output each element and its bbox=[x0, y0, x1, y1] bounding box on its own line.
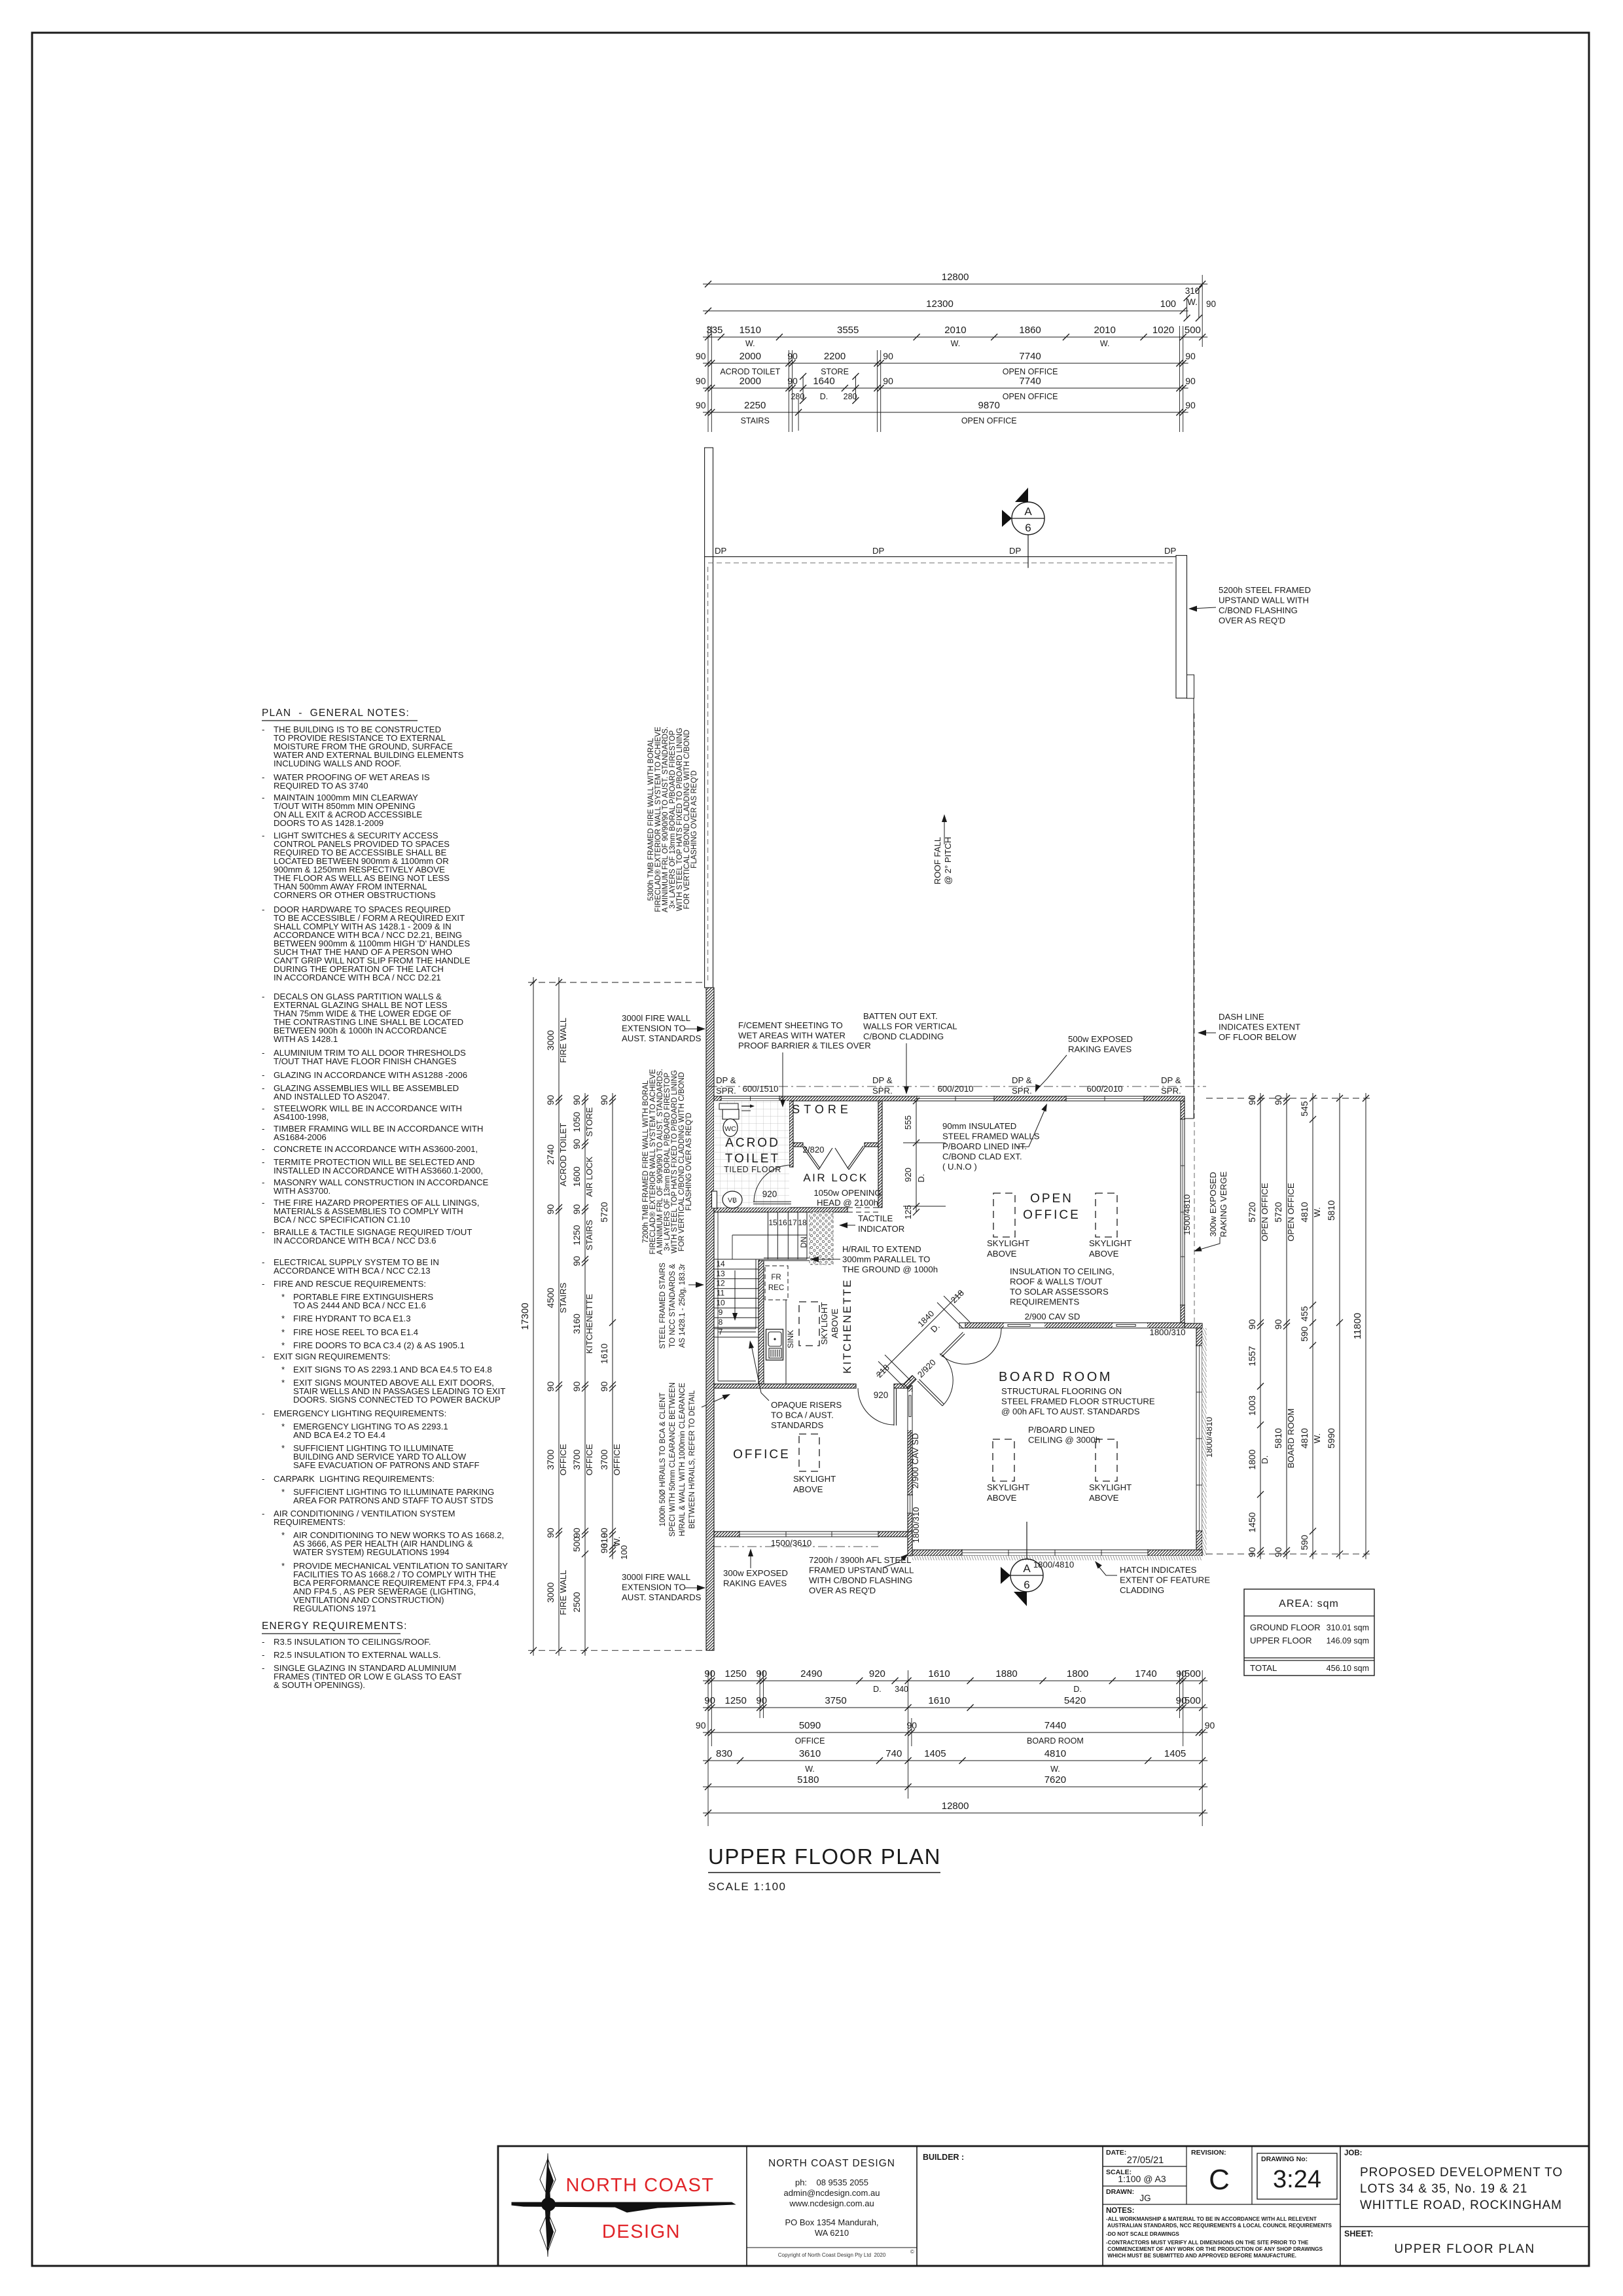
svg-text:90: 90 bbox=[545, 1381, 556, 1391]
svg-text:2250: 2250 bbox=[744, 400, 766, 411]
svg-text:NOTES:: NOTES: bbox=[1106, 2207, 1134, 2215]
svg-text:1860: 1860 bbox=[1019, 325, 1041, 336]
svg-text:OPEN OFFICE: OPEN OFFICE bbox=[961, 416, 1017, 425]
svg-text:UPPER FLOOR PLAN: UPPER FLOOR PLAN bbox=[708, 1844, 941, 1869]
svg-text:BOARD ROOM: BOARD ROOM bbox=[1286, 1408, 1296, 1469]
svg-text:100: 100 bbox=[1160, 299, 1176, 310]
svg-text:18: 18 bbox=[798, 1218, 807, 1227]
svg-text:OFFICE: OFFICE bbox=[612, 1444, 622, 1476]
svg-text:FIRE HOSE REEL TO BCA E1.4: FIRE HOSE REEL TO BCA E1.4 bbox=[293, 1327, 418, 1337]
svg-text:ABOVE: ABOVE bbox=[1089, 1249, 1119, 1259]
svg-text:830: 830 bbox=[716, 1748, 732, 1759]
svg-text:( U.N.O ): ( U.N.O ) bbox=[942, 1162, 977, 1172]
svg-text:AREA FOR PATRONS AND STAFF TO: AREA FOR PATRONS AND STAFF TO AUST STDS bbox=[293, 1496, 493, 1505]
svg-text:-: - bbox=[262, 1198, 264, 1208]
svg-text:5810: 5810 bbox=[1273, 1428, 1283, 1448]
svg-text:90: 90 bbox=[545, 1528, 556, 1538]
svg-text:SKYLIGHT: SKYLIGHT bbox=[1089, 1238, 1132, 1248]
svg-text:500: 500 bbox=[1185, 1695, 1201, 1706]
svg-text:W.: W. bbox=[1312, 1433, 1322, 1443]
svg-text:90: 90 bbox=[545, 1204, 556, 1215]
svg-text:BATTEN OUT EXT.: BATTEN OUT EXT. bbox=[863, 1011, 938, 1021]
svg-text:TO SOLAR ASSESSORS: TO SOLAR ASSESSORS bbox=[1010, 1287, 1109, 1297]
svg-text:FIRE HYDRANT TO BCA E1.3: FIRE HYDRANT TO BCA E1.3 bbox=[293, 1314, 411, 1323]
svg-text:1740: 1740 bbox=[1135, 1668, 1156, 1679]
svg-text:-: - bbox=[262, 1257, 264, 1267]
svg-text:D.: D. bbox=[873, 1685, 882, 1694]
svg-text:90: 90 bbox=[571, 1095, 582, 1105]
svg-text:ABOVE: ABOVE bbox=[987, 1249, 1017, 1259]
svg-text:STAIRS: STAIRS bbox=[584, 1220, 594, 1251]
svg-text:A: A bbox=[1024, 505, 1032, 518]
svg-text:340: 340 bbox=[895, 1685, 908, 1694]
svg-text:455: 455 bbox=[1299, 1306, 1310, 1321]
svg-text:INSULATION TO CEILING,: INSULATION TO CEILING, bbox=[1010, 1266, 1115, 1276]
svg-text:90: 90 bbox=[1185, 351, 1196, 361]
svg-text:*: * bbox=[281, 1292, 285, 1302]
svg-text:13: 13 bbox=[716, 1269, 725, 1278]
svg-text:SKYLIGHT: SKYLIGHT bbox=[987, 1482, 1029, 1492]
svg-text:920: 920 bbox=[762, 1189, 777, 1199]
svg-text:DATE:: DATE: bbox=[1106, 2149, 1126, 2157]
svg-text:ENERGY REQUIREMENTS:: ENERGY REQUIREMENTS: bbox=[262, 1621, 408, 1632]
svg-text:C: C bbox=[1209, 2164, 1230, 2196]
svg-text:ACROD TOILET: ACROD TOILET bbox=[720, 367, 780, 376]
svg-text:GLAZING IN ACCORDANCE WITH AS1: GLAZING IN ACCORDANCE WITH AS1288 -2006 bbox=[274, 1070, 467, 1080]
svg-text:DN: DN bbox=[799, 1236, 808, 1247]
svg-text:PLAN - GENERAL NOTES:: PLAN - GENERAL NOTES: bbox=[262, 708, 410, 719]
svg-text:3555: 3555 bbox=[837, 325, 859, 336]
svg-text:JOB:: JOB: bbox=[1344, 2149, 1362, 2157]
svg-text:INSTALLED IN ACCORDANCE WITH A: INSTALLED IN ACCORDANCE WITH AS3660.1-20… bbox=[274, 1166, 483, 1175]
svg-text:1800: 1800 bbox=[1067, 1668, 1088, 1679]
svg-text:C/BOND CLAD EXT.: C/BOND CLAD EXT. bbox=[942, 1152, 1022, 1162]
svg-text:IN ACCORDANCE WITH BCA / NCC D: IN ACCORDANCE WITH BCA / NCC D2.21 bbox=[274, 973, 441, 982]
svg-text:FLASHING OVER AS REQ'D: FLASHING OVER AS REQ'D bbox=[685, 1113, 693, 1211]
svg-text:5990: 5990 bbox=[1326, 1428, 1336, 1448]
svg-text:RAKING EAVES: RAKING EAVES bbox=[1068, 1045, 1132, 1054]
svg-text:SPR.: SPR. bbox=[872, 1086, 893, 1096]
svg-text:PROOF BARRIER & TILES OVER: PROOF BARRIER & TILES OVER bbox=[738, 1041, 871, 1050]
svg-text:-: - bbox=[262, 831, 264, 840]
svg-text:-: - bbox=[262, 1144, 264, 1154]
svg-text:P/BOARD LINED INT.: P/BOARD LINED INT. bbox=[942, 1141, 1027, 1151]
svg-text:17: 17 bbox=[788, 1218, 797, 1227]
svg-text:SPR.: SPR. bbox=[1161, 1086, 1181, 1096]
svg-text:12800: 12800 bbox=[942, 1801, 969, 1812]
svg-text:W.: W. bbox=[951, 339, 961, 348]
svg-text:*: * bbox=[281, 1422, 285, 1431]
svg-text:-: - bbox=[262, 992, 264, 1001]
svg-text:1600: 1600 bbox=[571, 1166, 582, 1187]
svg-text:SINK: SINK bbox=[786, 1330, 795, 1348]
svg-text:90: 90 bbox=[599, 1543, 609, 1554]
svg-text:OFFICE: OFFICE bbox=[584, 1444, 594, 1476]
svg-text:456.10 sqm: 456.10 sqm bbox=[1327, 1664, 1369, 1673]
svg-text:12: 12 bbox=[716, 1279, 725, 1288]
svg-text:H/RAIL & WALL WITH 1000min CLE: H/RAIL & WALL WITH 1000min CLEARANCE bbox=[679, 1382, 687, 1536]
svg-text:1003: 1003 bbox=[1247, 1395, 1257, 1416]
svg-text:11800: 11800 bbox=[1352, 1313, 1363, 1340]
svg-text:1:100 @ A3: 1:100 @ A3 bbox=[1118, 2174, 1166, 2184]
svg-text:*: * bbox=[281, 1378, 285, 1388]
svg-text:DESIGN: DESIGN bbox=[602, 2221, 681, 2242]
svg-text:ABOVE: ABOVE bbox=[987, 1493, 1017, 1503]
svg-text:90: 90 bbox=[571, 1528, 582, 1538]
svg-text:STAIRS: STAIRS bbox=[558, 1282, 568, 1313]
svg-text:1250: 1250 bbox=[571, 1225, 582, 1245]
svg-text:EMERGENCY LIGHTING REQUIREMENT: EMERGENCY LIGHTING REQUIREMENTS: bbox=[274, 1408, 446, 1418]
svg-text:CARPARK LIGHTING REQUIREMENTS: CARPARK LIGHTING REQUIREMENTS: bbox=[274, 1474, 435, 1484]
svg-text:90: 90 bbox=[1205, 1720, 1215, 1731]
svg-text:FIRE DOORS TO BCA C3.4 (2) & A: FIRE DOORS TO BCA C3.4 (2) & AS 1905.1 bbox=[293, 1340, 465, 1350]
svg-text:DP: DP bbox=[1164, 546, 1177, 556]
svg-text:3000: 3000 bbox=[545, 1582, 556, 1602]
svg-text:500: 500 bbox=[1185, 325, 1201, 336]
svg-text:OFFICE: OFFICE bbox=[733, 1448, 791, 1462]
svg-text:Copyright of North Coast Desig: Copyright of North Coast Design Pty Ltd … bbox=[778, 2252, 886, 2258]
svg-text:DP: DP bbox=[872, 546, 885, 556]
svg-text:REQUIRED TO AS 3740: REQUIRED TO AS 3740 bbox=[274, 781, 368, 791]
svg-text:-: - bbox=[262, 905, 264, 914]
svg-text:4810: 4810 bbox=[1044, 1748, 1066, 1759]
svg-text:*: * bbox=[281, 1327, 285, 1337]
svg-text:FR: FR bbox=[771, 1274, 781, 1282]
svg-text:280: 280 bbox=[791, 392, 804, 401]
svg-text:BUILDER :: BUILDER : bbox=[923, 2153, 964, 2162]
svg-text:VB: VB bbox=[728, 1196, 737, 1204]
svg-text:AS 1428.1 - 250g, 183.3r: AS 1428.1 - 250g, 183.3r bbox=[679, 1264, 687, 1348]
svg-text:*: * bbox=[281, 1443, 285, 1453]
svg-text:EXTENT OF FEATURE: EXTENT OF FEATURE bbox=[1120, 1575, 1210, 1585]
svg-text:NORTH COAST DESIGN: NORTH COAST DESIGN bbox=[768, 2158, 895, 2169]
svg-text:1050: 1050 bbox=[571, 1112, 582, 1132]
svg-text:5720: 5720 bbox=[1273, 1202, 1283, 1222]
svg-text:OVER AS REQ'D: OVER AS REQ'D bbox=[809, 1586, 876, 1596]
svg-text:AUST. STANDARDS: AUST. STANDARDS bbox=[622, 1033, 702, 1043]
svg-text:90: 90 bbox=[599, 1381, 609, 1391]
svg-text:WATER SYSTEM) REGULATIONS 1994: WATER SYSTEM) REGULATIONS 1994 bbox=[293, 1547, 450, 1557]
svg-text:500: 500 bbox=[1185, 1668, 1201, 1679]
svg-text:*: * bbox=[281, 1314, 285, 1323]
svg-text:-: - bbox=[262, 1103, 264, 1113]
svg-text:4810: 4810 bbox=[1299, 1428, 1310, 1448]
svg-text:TOILET: TOILET bbox=[725, 1152, 780, 1166]
svg-text:TO AS 2444 AND BCA / NCC E1.6: TO AS 2444 AND BCA / NCC E1.6 bbox=[293, 1300, 426, 1310]
svg-text:-: - bbox=[262, 1177, 264, 1187]
svg-text:-: - bbox=[262, 1070, 264, 1080]
svg-text:2740: 2740 bbox=[545, 1144, 556, 1164]
svg-text:7620: 7620 bbox=[1044, 1774, 1066, 1785]
svg-text:590: 590 bbox=[1299, 1535, 1310, 1551]
svg-text:920: 920 bbox=[903, 1168, 913, 1182]
svg-text:C/BOND CLADDING: C/BOND CLADDING bbox=[863, 1031, 944, 1041]
svg-text:146.09 sqm: 146.09 sqm bbox=[1327, 1636, 1369, 1645]
svg-text:1500/4810: 1500/4810 bbox=[1182, 1194, 1192, 1235]
svg-text:www.ncdesign.com.au: www.ncdesign.com.au bbox=[789, 2198, 874, 2208]
svg-text:6: 6 bbox=[1024, 1579, 1029, 1591]
svg-text:1450: 1450 bbox=[1247, 1512, 1257, 1532]
svg-text:UPSTAND WALL WITH: UPSTAND WALL WITH bbox=[1219, 596, 1309, 605]
svg-text:90: 90 bbox=[1247, 1547, 1257, 1558]
svg-text:CLADDING: CLADDING bbox=[1120, 1585, 1164, 1595]
svg-text:1250: 1250 bbox=[725, 1695, 747, 1706]
svg-text:3700: 3700 bbox=[571, 1449, 582, 1469]
svg-text:CORNERS OR OTHER OBSTRUCTIONS: CORNERS OR OTHER OBSTRUCTIONS bbox=[274, 890, 436, 900]
svg-text:125: 125 bbox=[903, 1205, 913, 1219]
svg-text:920: 920 bbox=[874, 1390, 889, 1400]
svg-text:17300: 17300 bbox=[520, 1302, 531, 1330]
svg-text:AIR LOCK: AIR LOCK bbox=[803, 1172, 868, 1184]
svg-text:LOTS 34 & 35, No. 19 & 21: LOTS 34 & 35, No. 19 & 21 bbox=[1360, 2182, 1527, 2196]
svg-text:D.: D. bbox=[820, 392, 829, 401]
svg-text:GROUND FLOOR: GROUND FLOOR bbox=[1250, 1623, 1321, 1632]
svg-text:COMMENCEMENT OF ANY WORK OR TH: COMMENCEMENT OF ANY WORK OR THE PRODUCTI… bbox=[1106, 2246, 1323, 2252]
svg-text:1610: 1610 bbox=[599, 1344, 609, 1364]
svg-text:310.01 sqm: 310.01 sqm bbox=[1327, 1623, 1369, 1632]
svg-text:BOARD ROOM: BOARD ROOM bbox=[1027, 1736, 1084, 1746]
svg-text:AS4100-1998,: AS4100-1998, bbox=[274, 1112, 329, 1122]
svg-text:*: * bbox=[281, 1365, 285, 1374]
svg-text:OFFICE: OFFICE bbox=[795, 1736, 825, 1746]
svg-text:3160: 3160 bbox=[571, 1314, 582, 1334]
svg-text:2/820: 2/820 bbox=[802, 1145, 824, 1155]
svg-text:-: - bbox=[262, 793, 264, 802]
svg-text:90: 90 bbox=[696, 400, 706, 410]
svg-text:14: 14 bbox=[716, 1259, 725, 1268]
svg-text:12800: 12800 bbox=[942, 272, 969, 283]
svg-text:OPEN: OPEN bbox=[1030, 1192, 1073, 1206]
svg-text:INDICATOR: INDICATOR bbox=[858, 1224, 904, 1234]
svg-text:INDICATES EXTENT: INDICATES EXTENT bbox=[1219, 1022, 1300, 1032]
svg-text:600/1510: 600/1510 bbox=[742, 1084, 778, 1094]
svg-text:7440: 7440 bbox=[1044, 1720, 1066, 1731]
svg-text:2010: 2010 bbox=[1094, 325, 1116, 336]
svg-text:3610: 3610 bbox=[799, 1748, 821, 1759]
svg-text:DP &: DP & bbox=[872, 1075, 893, 1085]
svg-text:300mm PARALLEL TO: 300mm PARALLEL TO bbox=[842, 1255, 930, 1265]
svg-text:W.: W. bbox=[1050, 1765, 1060, 1774]
svg-text:6: 6 bbox=[1025, 522, 1031, 534]
svg-text:WALLS FOR VERTICAL: WALLS FOR VERTICAL bbox=[863, 1022, 957, 1031]
svg-text:STORE: STORE bbox=[821, 367, 849, 376]
svg-text:90: 90 bbox=[704, 1668, 715, 1679]
svg-text:90: 90 bbox=[1273, 1319, 1283, 1329]
svg-text:27/05/21: 27/05/21 bbox=[1127, 2155, 1164, 2166]
svg-text:R3.5 INSULATION TO CEILINGS/RO: R3.5 INSULATION TO CEILINGS/ROOF. bbox=[274, 1637, 431, 1647]
svg-text:RAKING VERGE: RAKING VERGE bbox=[1219, 1172, 1228, 1238]
svg-text:AIR LOCK: AIR LOCK bbox=[584, 1157, 594, 1197]
svg-text:INCLUDING WALLS AND ROOF.: INCLUDING WALLS AND ROOF. bbox=[274, 759, 401, 768]
svg-text:11: 11 bbox=[717, 1289, 725, 1298]
svg-text:335: 335 bbox=[706, 325, 722, 336]
svg-text:7740: 7740 bbox=[1019, 351, 1041, 362]
svg-text:90: 90 bbox=[1247, 1319, 1257, 1329]
svg-text:90: 90 bbox=[756, 1695, 767, 1706]
svg-text:500w EXPOSED: 500w EXPOSED bbox=[1068, 1034, 1133, 1044]
svg-text:REVISION:: REVISION: bbox=[1191, 2149, 1226, 2157]
svg-text:ROOF & WALLS T/OUT: ROOF & WALLS T/OUT bbox=[1010, 1277, 1102, 1287]
svg-text:HATCH INDICATES: HATCH INDICATES bbox=[1120, 1565, 1197, 1575]
svg-text:FIRE WALL: FIRE WALL bbox=[558, 1018, 568, 1063]
svg-text:-: - bbox=[262, 772, 264, 782]
svg-text:OFFICE: OFFICE bbox=[1023, 1208, 1080, 1222]
svg-text:90: 90 bbox=[571, 1204, 582, 1215]
svg-text:SCALE 1:100: SCALE 1:100 bbox=[708, 1880, 787, 1893]
svg-text:admin@ncdesign.com.au: admin@ncdesign.com.au bbox=[784, 2188, 880, 2198]
svg-text:@ 2° PITCH: @ 2° PITCH bbox=[943, 837, 953, 885]
svg-text:TOTAL: TOTAL bbox=[1250, 1663, 1277, 1673]
svg-text:ABOVE: ABOVE bbox=[793, 1484, 823, 1494]
svg-text:7200h / 3900h AFL STEEL: 7200h / 3900h AFL STEEL bbox=[809, 1555, 911, 1565]
svg-text:IN ACCORDANCE WITH BCA / NCC D: IN ACCORDANCE WITH BCA / NCC D3.6 bbox=[274, 1236, 436, 1246]
svg-text:OPEN OFFICE: OPEN OFFICE bbox=[1260, 1183, 1270, 1242]
svg-text:90: 90 bbox=[1273, 1095, 1283, 1105]
svg-text:SKYLIGHT: SKYLIGHT bbox=[1089, 1482, 1132, 1492]
svg-text:SKYLIGHT: SKYLIGHT bbox=[819, 1302, 829, 1344]
svg-text:12300: 12300 bbox=[926, 298, 954, 310]
svg-text:1880: 1880 bbox=[995, 1668, 1017, 1679]
svg-text:WET AREAS WITH WATER: WET AREAS WITH WATER bbox=[738, 1031, 846, 1041]
svg-text:5180: 5180 bbox=[797, 1774, 819, 1785]
svg-text:-: - bbox=[262, 725, 264, 734]
svg-text:-: - bbox=[262, 1474, 264, 1484]
svg-text:3:24: 3:24 bbox=[1273, 2166, 1321, 2193]
svg-text:300w EXPOSED: 300w EXPOSED bbox=[723, 1568, 788, 1578]
svg-text:W.: W. bbox=[1100, 339, 1110, 348]
svg-text:SPR.: SPR. bbox=[716, 1086, 736, 1096]
svg-text:2000: 2000 bbox=[740, 351, 761, 362]
svg-text:90: 90 bbox=[571, 1256, 582, 1266]
svg-text:FIRE WALL: FIRE WALL bbox=[558, 1570, 568, 1615]
svg-text:C/BOND FLASHING: C/BOND FLASHING bbox=[1219, 605, 1298, 615]
svg-text:UPPER FLOOR: UPPER FLOOR bbox=[1250, 1636, 1312, 1645]
svg-text:90: 90 bbox=[545, 1095, 556, 1105]
svg-text:SPR.: SPR. bbox=[1012, 1086, 1032, 1096]
svg-text:90: 90 bbox=[571, 1139, 582, 1149]
svg-text:4810: 4810 bbox=[1299, 1202, 1310, 1222]
svg-text:90: 90 bbox=[883, 376, 893, 386]
svg-text:R2.5 INSULATION TO EXTERNAL WA: R2.5 INSULATION TO EXTERNAL WALLS. bbox=[274, 1650, 441, 1660]
svg-text:W.: W. bbox=[1187, 297, 1198, 307]
svg-text:SPECI WITH 50mm CLEARANCE BETW: SPECI WITH 50mm CLEARANCE BETWEEN bbox=[669, 1382, 677, 1537]
svg-text:FLASHING OVER AS REQ'D: FLASHING OVER AS REQ'D bbox=[690, 770, 698, 869]
svg-text:3700: 3700 bbox=[545, 1449, 556, 1469]
svg-text:500: 500 bbox=[571, 1537, 582, 1552]
svg-text:ACROD TOILET: ACROD TOILET bbox=[558, 1123, 568, 1187]
svg-text:KITCHENETTE: KITCHENETTE bbox=[584, 1294, 594, 1354]
svg-text:DP &: DP & bbox=[1012, 1075, 1032, 1085]
svg-text:AS1684-2006: AS1684-2006 bbox=[274, 1132, 327, 1142]
svg-text:90: 90 bbox=[696, 376, 706, 386]
svg-text:-: - bbox=[262, 1637, 264, 1647]
svg-text:DASH LINE: DASH LINE bbox=[1219, 1012, 1264, 1022]
svg-text:5090: 5090 bbox=[799, 1720, 821, 1731]
svg-text:OVER AS REQ'D: OVER AS REQ'D bbox=[1219, 616, 1285, 626]
svg-text:-: - bbox=[262, 1408, 264, 1418]
svg-text:EXTENSION TO: EXTENSION TO bbox=[622, 1024, 686, 1033]
svg-text:DRAWING No:: DRAWING No: bbox=[1261, 2155, 1308, 2163]
svg-text:280: 280 bbox=[844, 392, 857, 401]
svg-text:1050w OPENING: 1050w OPENING bbox=[813, 1188, 881, 1198]
svg-text:740: 740 bbox=[885, 1748, 902, 1759]
svg-text:WC: WC bbox=[724, 1125, 736, 1133]
svg-text:DP: DP bbox=[1009, 546, 1022, 556]
svg-text:EXTENSION TO: EXTENSION TO bbox=[622, 1583, 686, 1592]
svg-text:1557: 1557 bbox=[1247, 1346, 1257, 1366]
svg-text:5420: 5420 bbox=[1064, 1695, 1086, 1706]
svg-text:REGULATIONS 1971: REGULATIONS 1971 bbox=[293, 1604, 376, 1613]
svg-text:DRAWN:: DRAWN: bbox=[1106, 2188, 1134, 2196]
svg-text:REQUIREMENTS: REQUIREMENTS bbox=[1010, 1297, 1079, 1307]
svg-text:JG: JG bbox=[1139, 2193, 1150, 2203]
svg-text:300w EXPOSED: 300w EXPOSED bbox=[1208, 1172, 1218, 1237]
svg-text:15: 15 bbox=[768, 1218, 777, 1227]
svg-text:STRUCTURAL FLOORING ON: STRUCTURAL FLOORING ON bbox=[1001, 1386, 1122, 1396]
svg-text:NORTH COAST: NORTH COAST bbox=[565, 2175, 714, 2196]
svg-text:& SOUTH OPENINGS).: & SOUTH OPENINGS). bbox=[274, 1680, 365, 1690]
svg-text:DOORS. SIGNS CONNECTED TO POWE: DOORS. SIGNS CONNECTED TO POWER BACKUP bbox=[293, 1395, 501, 1405]
svg-text:SAFE EVACUATION OF PATRONS AND: SAFE EVACUATION OF PATRONS AND STAFF bbox=[293, 1460, 480, 1470]
svg-text:STAIRS: STAIRS bbox=[741, 416, 770, 425]
svg-text:BETWEEN H/RAILS, REFER TO DETA: BETWEEN H/RAILS, REFER TO DETAIL bbox=[688, 1390, 696, 1529]
svg-text:FRAMED UPSTAND WALL: FRAMED UPSTAND WALL bbox=[809, 1566, 914, 1575]
svg-text:WITH AS3700.: WITH AS3700. bbox=[274, 1186, 330, 1196]
svg-text:PO Box 1354 Mandurah,: PO Box 1354 Mandurah, bbox=[785, 2217, 878, 2227]
svg-text:OF FLOOR BELOW: OF FLOOR BELOW bbox=[1219, 1032, 1296, 1042]
svg-text:WHICH MUST BE SUBMITTED AND AP: WHICH MUST BE SUBMITTED AND APPROVED BEF… bbox=[1106, 2253, 1296, 2259]
svg-text:THE GROUND @ 1000h: THE GROUND @ 1000h bbox=[842, 1265, 938, 1274]
svg-text:-CONTRACTORS MUST VERIFY ALL D: -CONTRACTORS MUST VERIFY ALL DIMENSIONS … bbox=[1106, 2240, 1309, 2246]
svg-text:1610: 1610 bbox=[928, 1695, 950, 1706]
svg-text:T/OUT THAT HAVE FLOOR FINISH C: T/OUT THAT HAVE FLOOR FINISH CHANGES bbox=[274, 1056, 457, 1066]
svg-text:AUST. STANDARDS: AUST. STANDARDS bbox=[622, 1592, 702, 1602]
svg-text:1800: 1800 bbox=[1247, 1449, 1257, 1469]
svg-text:TILED FLOOR: TILED FLOOR bbox=[724, 1165, 781, 1174]
svg-text:-DO NOT SCALE DRAWINGS: -DO NOT SCALE DRAWINGS bbox=[1106, 2231, 1179, 2237]
svg-text:ACROD: ACROD bbox=[725, 1136, 780, 1150]
svg-text:WHITTLE ROAD, ROCKINGHAM: WHITTLE ROAD, ROCKINGHAM bbox=[1360, 2198, 1562, 2212]
svg-text:PROPOSED DEVELOPMENT TO: PROPOSED DEVELOPMENT TO bbox=[1360, 2166, 1563, 2179]
svg-text:920: 920 bbox=[869, 1668, 885, 1679]
svg-text:5720: 5720 bbox=[599, 1202, 609, 1222]
svg-text:WITH AS 1428.1: WITH AS 1428.1 bbox=[274, 1034, 338, 1044]
svg-text:8: 8 bbox=[719, 1318, 723, 1327]
svg-text:ph: 08 9535 2055: ph: 08 9535 2055 bbox=[795, 2178, 868, 2187]
svg-text:WITH C/BOND FLASHING: WITH C/BOND FLASHING bbox=[809, 1575, 912, 1585]
svg-text:90: 90 bbox=[883, 351, 893, 361]
svg-text:90mm INSULATED: 90mm INSULATED bbox=[942, 1121, 1016, 1131]
svg-text:ACCORDANCE WITH BCA / NCC C2.1: ACCORDANCE WITH BCA / NCC C2.13 bbox=[274, 1266, 431, 1276]
svg-text:STEEL FRAMED WALLS: STEEL FRAMED WALLS bbox=[942, 1132, 1040, 1141]
svg-text:RAKING EAVES: RAKING EAVES bbox=[723, 1579, 787, 1588]
svg-text:STANDARDS: STANDARDS bbox=[771, 1420, 824, 1430]
svg-text:590: 590 bbox=[1299, 1326, 1310, 1342]
svg-text:H/RAIL TO EXTEND: H/RAIL TO EXTEND bbox=[842, 1244, 921, 1254]
svg-text:1640: 1640 bbox=[813, 376, 834, 387]
svg-text:310: 310 bbox=[1185, 286, 1200, 296]
svg-text:OPEN OFFICE: OPEN OFFICE bbox=[1003, 367, 1058, 376]
svg-text:P/BOARD LINED: P/BOARD LINED bbox=[1028, 1425, 1095, 1435]
svg-text:KITCHENETTE: KITCHENETTE bbox=[841, 1278, 853, 1374]
svg-text:1020: 1020 bbox=[1152, 325, 1174, 336]
svg-text:STEEL FRAMED FLOOR STRUCTURE: STEEL FRAMED FLOOR STRUCTURE bbox=[1001, 1397, 1155, 1407]
svg-text:3700: 3700 bbox=[599, 1449, 609, 1469]
svg-text:1405: 1405 bbox=[924, 1748, 946, 1759]
svg-text:OPEN OFFICE: OPEN OFFICE bbox=[1003, 392, 1058, 401]
svg-text:16: 16 bbox=[778, 1218, 787, 1227]
svg-text:9: 9 bbox=[719, 1308, 723, 1317]
